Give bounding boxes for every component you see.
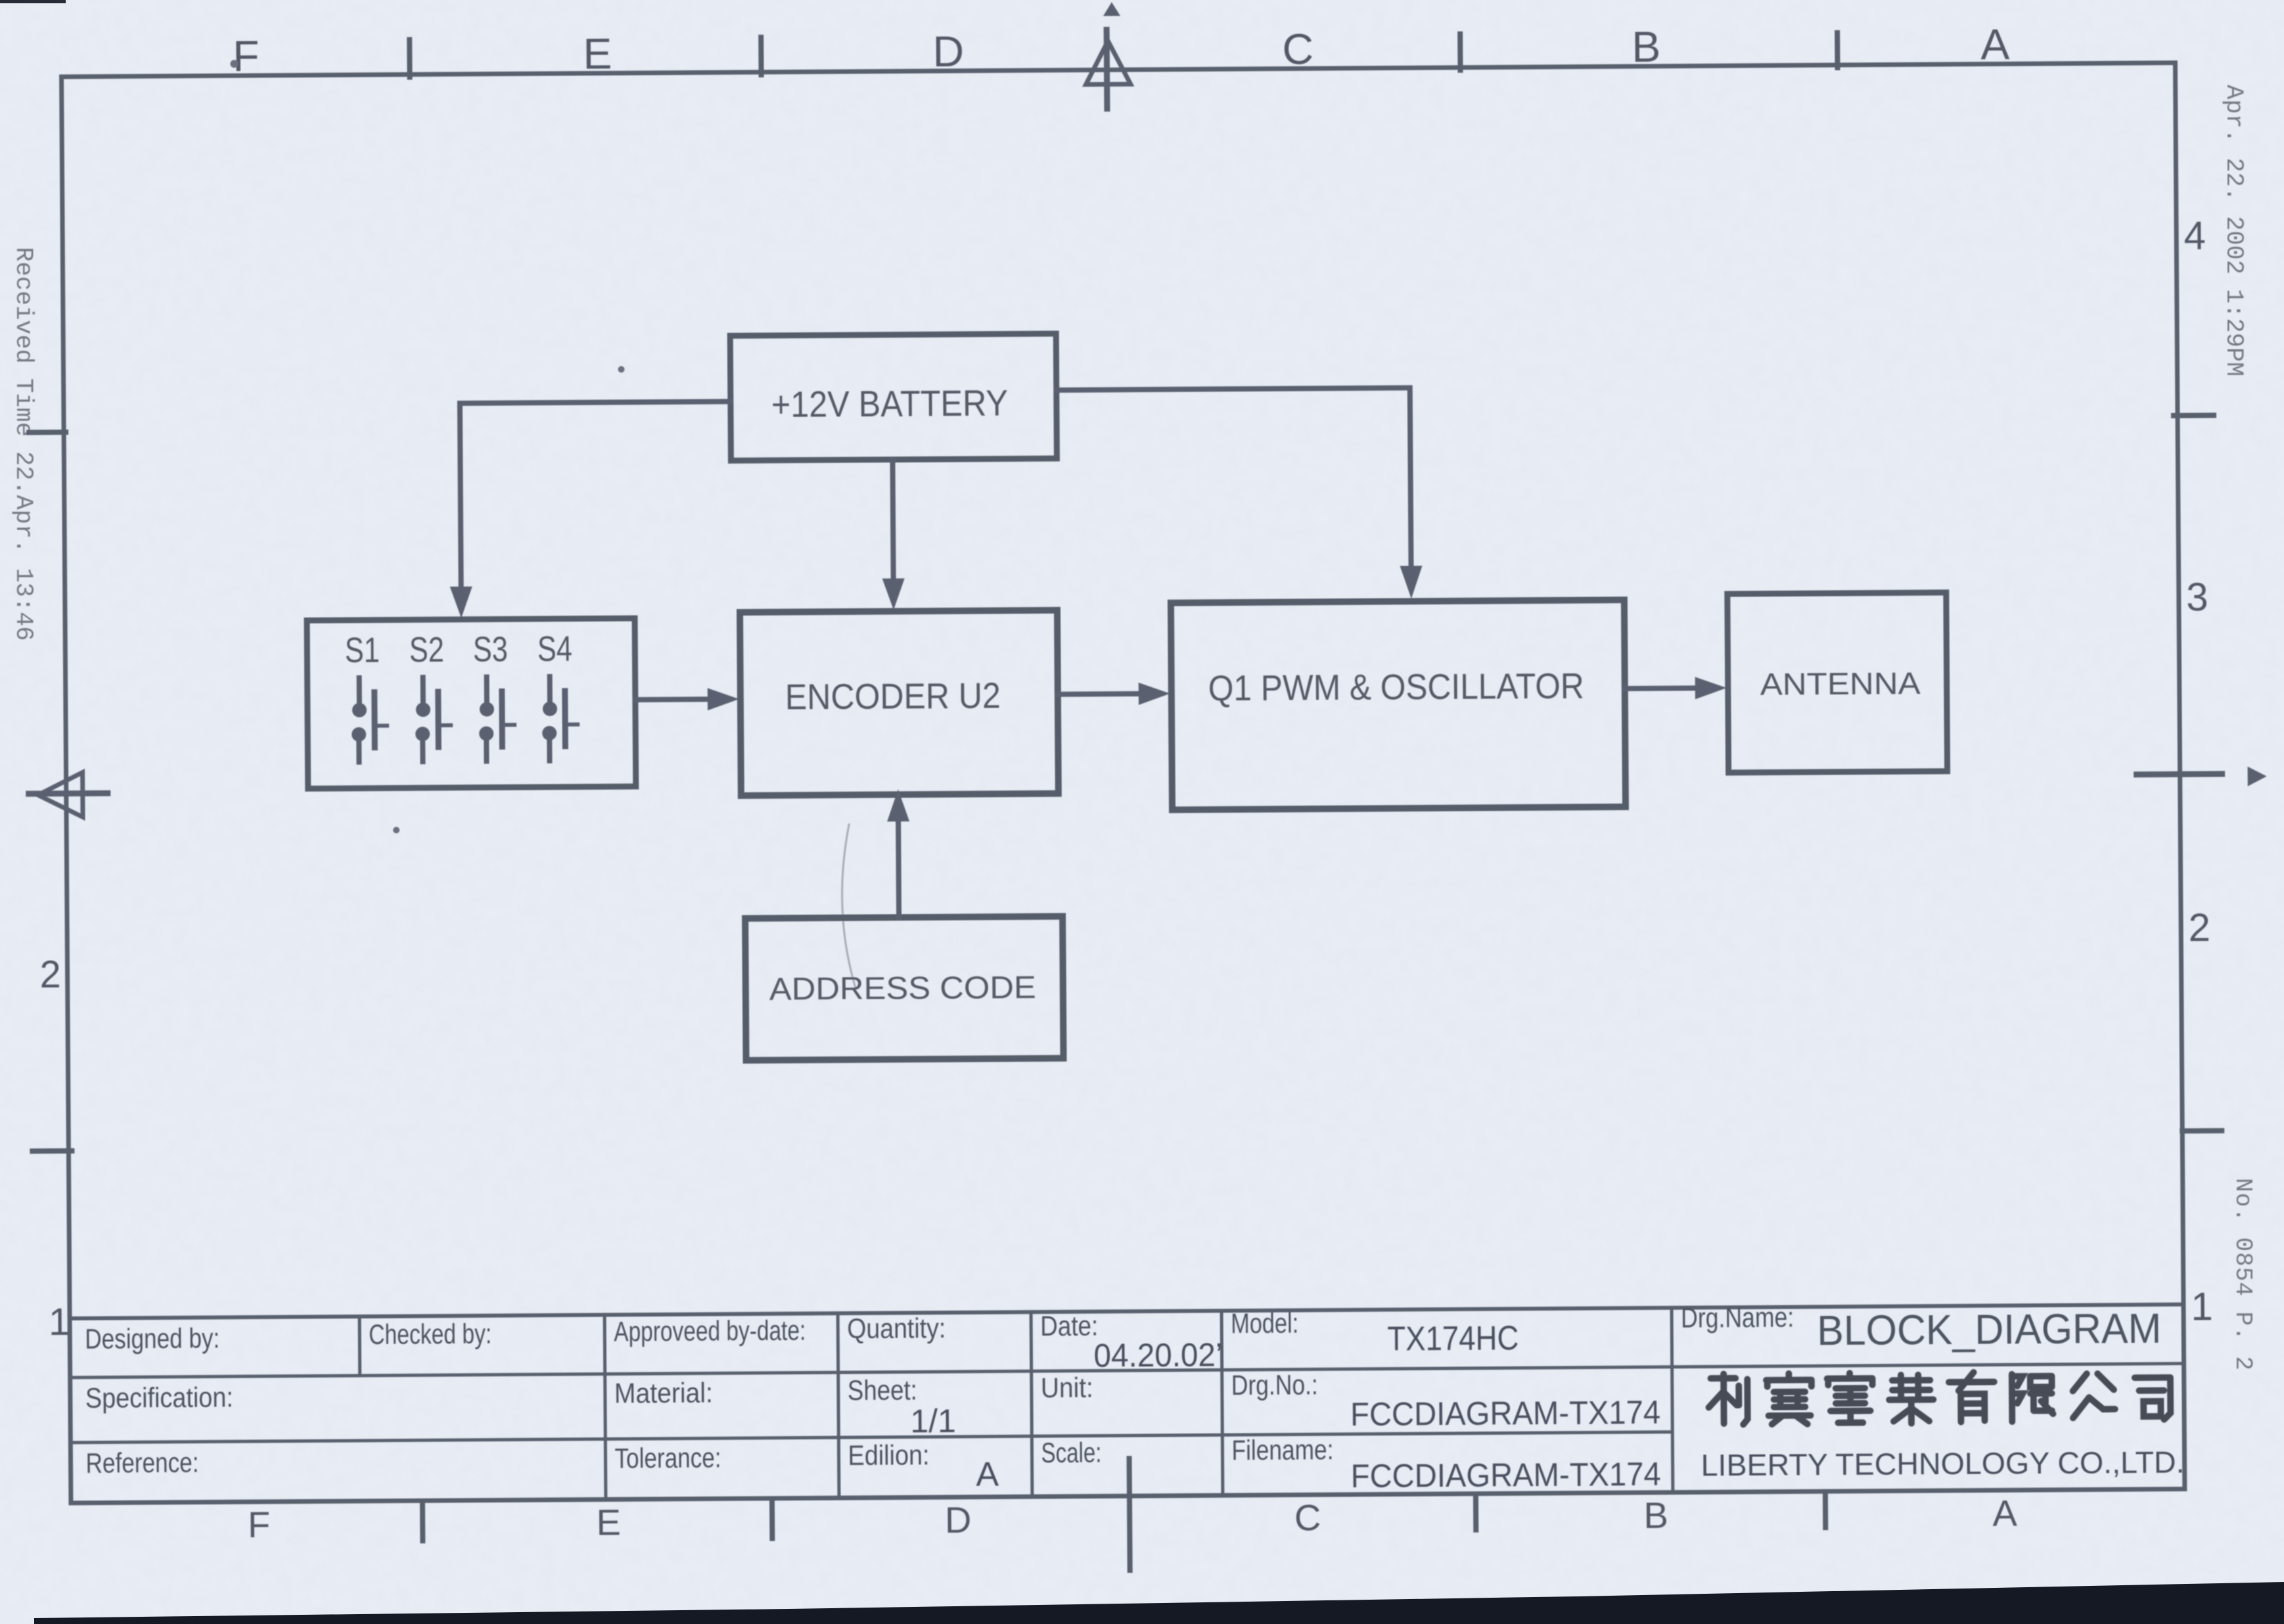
svg-text:B: B xyxy=(1643,1495,1668,1536)
svg-text:Apr. 22. 2002 1:29PM: Apr. 22. 2002 1:29PM xyxy=(2220,85,2247,376)
svg-text:FCCDIAGRAM-TX174: FCCDIAGRAM-TX174 xyxy=(1350,1394,1660,1433)
svg-text:S3: S3 xyxy=(473,629,508,669)
svg-text:C: C xyxy=(1282,24,1313,73)
svg-text:Q1 PWM & OSCILLATOR: Q1 PWM & OSCILLATOR xyxy=(1208,665,1584,709)
svg-text:E: E xyxy=(596,1501,621,1543)
svg-text:Designed by:: Designed by: xyxy=(85,1322,219,1355)
svg-text:A: A xyxy=(1980,20,2010,68)
svg-text:S4: S4 xyxy=(537,629,572,669)
svg-text:TX174HC: TX174HC xyxy=(1387,1319,1519,1358)
svg-text:04.20.02’: 04.20.02’ xyxy=(1093,1336,1222,1374)
svg-text:Date:: Date: xyxy=(1040,1310,1098,1342)
svg-text:Drg.Name:: Drg.Name: xyxy=(1681,1301,1794,1334)
svg-text:4: 4 xyxy=(2183,214,2206,258)
svg-text:1/1: 1/1 xyxy=(910,1403,956,1439)
svg-text:Model:: Model: xyxy=(1231,1307,1298,1340)
svg-text:Tolerance:: Tolerance: xyxy=(614,1442,721,1474)
svg-text:Material:: Material: xyxy=(614,1377,713,1409)
svg-text:Checked by:: Checked by: xyxy=(369,1319,491,1351)
svg-text:LIBERTY TECHNOLOGY CO.,LTD.: LIBERTY TECHNOLOGY CO.,LTD. xyxy=(1701,1445,2184,1482)
svg-text:2: 2 xyxy=(39,953,61,996)
svg-text:A: A xyxy=(976,1455,999,1493)
svg-text:Specification:: Specification: xyxy=(85,1382,233,1414)
svg-text:FCCDIAGRAM-TX174: FCCDIAGRAM-TX174 xyxy=(1351,1456,1661,1495)
svg-text:ENCODER U2: ENCODER U2 xyxy=(785,675,1001,717)
svg-text:ANTENNA: ANTENNA xyxy=(1760,665,1921,702)
svg-text:D: D xyxy=(932,27,964,76)
svg-text:Received Time 22.Apr. 13:46: Received Time 22.Apr. 13:46 xyxy=(9,247,37,641)
svg-text:B: B xyxy=(1632,22,1661,71)
svg-text:Unit:: Unit: xyxy=(1041,1372,1093,1405)
svg-text:Drg.No.:: Drg.No.: xyxy=(1231,1369,1318,1401)
svg-text:1: 1 xyxy=(2191,1284,2213,1328)
svg-text:Reference:: Reference: xyxy=(85,1447,198,1479)
svg-text:3: 3 xyxy=(2186,575,2208,619)
svg-text:Edilion:: Edilion: xyxy=(848,1439,929,1472)
svg-text:Quantity:: Quantity: xyxy=(847,1313,946,1345)
svg-text:C: C xyxy=(1294,1497,1321,1538)
svg-text:S1: S1 xyxy=(345,631,380,670)
svg-text:ADDRESS CODE: ADDRESS CODE xyxy=(769,970,1036,1007)
svg-text:BLOCK_DIAGRAM: BLOCK_DIAGRAM xyxy=(1817,1305,2161,1354)
svg-text:2: 2 xyxy=(2188,905,2210,949)
svg-text:No. 0854 P. 2: No. 0854 P. 2 xyxy=(2229,1178,2256,1371)
svg-text:F: F xyxy=(248,1504,271,1545)
svg-text:Approveed by-date:: Approveed by-date: xyxy=(614,1315,806,1347)
svg-text:E: E xyxy=(583,29,612,78)
svg-text:Sheet:: Sheet: xyxy=(848,1374,917,1407)
svg-text:S2: S2 xyxy=(409,630,444,669)
svg-text:A: A xyxy=(1992,1492,2017,1533)
svg-text:D: D xyxy=(945,1499,972,1541)
svg-text:1: 1 xyxy=(49,1301,70,1343)
svg-text:Filename:: Filename: xyxy=(1231,1434,1333,1466)
svg-text:F: F xyxy=(233,32,260,80)
svg-text:+12V BATTERY: +12V BATTERY xyxy=(771,382,1008,424)
svg-text:Scale:: Scale: xyxy=(1041,1437,1101,1469)
